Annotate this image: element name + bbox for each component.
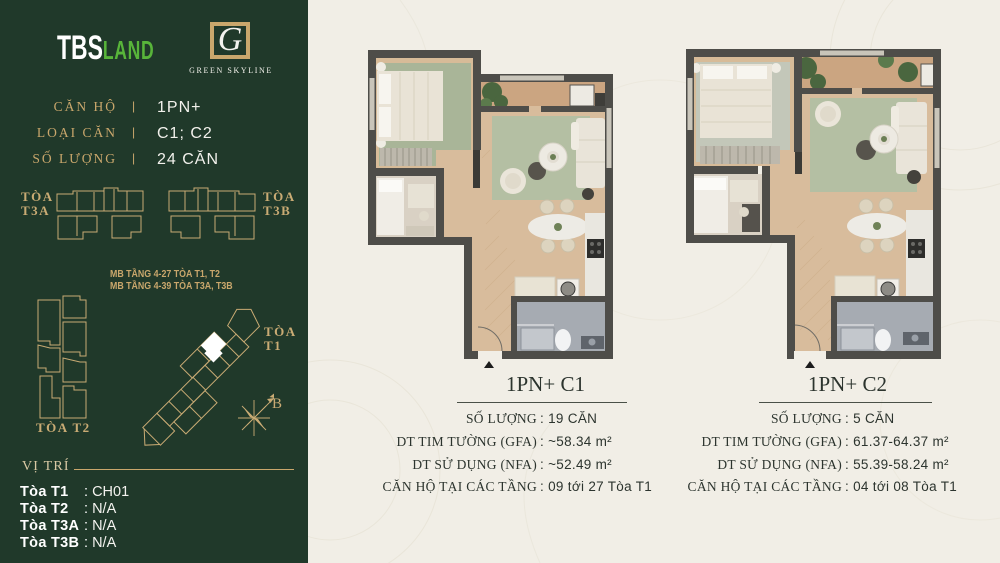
svg-text:B: B xyxy=(272,396,282,412)
